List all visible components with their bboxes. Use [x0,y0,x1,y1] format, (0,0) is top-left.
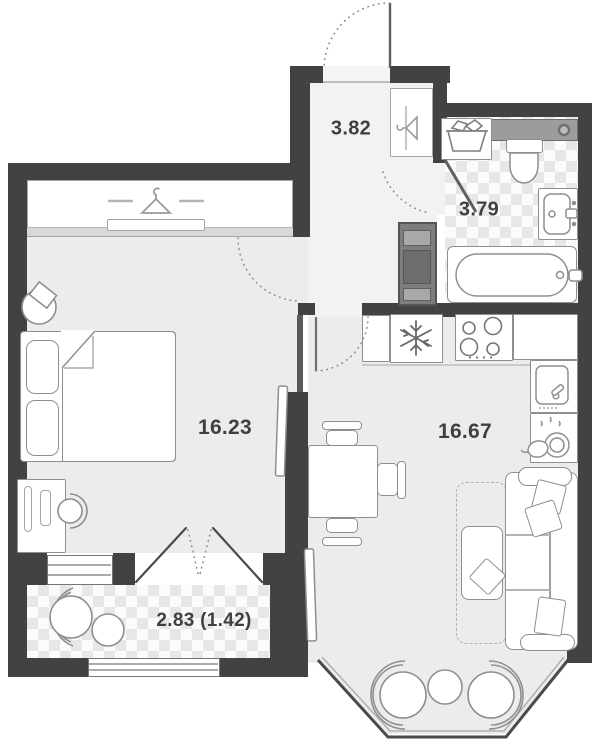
wall-partition [297,315,303,393]
kitchen-sink-cabinet [530,360,578,413]
fridge [390,314,443,363]
chair-back [397,461,406,499]
bay-frame-inner [322,657,564,731]
utility-shaft [398,222,437,306]
entry-door [324,3,390,69]
room-label-bedroom: 16.23 [198,416,252,440]
bay-armchair-left [371,661,426,729]
wall-segment [8,658,88,677]
bay-floor [318,658,568,734]
wall-segment [290,66,310,237]
wall-segment [290,66,323,83]
toilet-tank [506,139,543,153]
entry-threshold [323,66,390,83]
wall-segment [113,553,135,585]
wall-segment [8,163,293,180]
window-glazing-line [48,564,111,566]
wall-segment [220,658,290,677]
bay-table [428,670,462,704]
kitchen-counter [362,315,390,362]
room-label-living: 16.67 [438,420,492,444]
window-glazing-line [48,574,111,576]
wall-segment [8,553,47,585]
laundry-basket [441,118,492,160]
chair-seat [326,430,358,446]
shaft-box [403,230,431,246]
chair-seat [377,463,398,496]
dish-rack-cabinet [530,413,578,463]
wall-segment [390,66,450,83]
kitchen-counter [513,314,578,360]
bay-frame-outer [318,660,568,737]
floor-plan: 3.82 3.79 16.23 16.67 2.83 (1.42) [0,0,600,744]
bath-door-threshold [433,163,445,215]
hall-closet [390,88,433,157]
bay-armchair-right [468,661,523,729]
wall-segment [263,553,308,585]
chair-back [322,421,362,430]
shaft-box [403,288,431,301]
stove [455,314,513,361]
wall-segment [298,303,315,315]
door-swing-icon [324,3,390,69]
hall-living-threshold [308,302,364,317]
wall-segment [578,103,592,663]
room-label-balcony: 2.83 (1.42) [156,610,251,632]
bath-sink [538,188,578,240]
wall-segment [440,103,592,117]
window-glazing-line [89,663,218,665]
dining-table [308,445,378,518]
balcony-window [88,658,220,677]
desk-monitor [24,486,32,532]
wardrobe-door [107,219,205,231]
chair-back [322,537,362,546]
bathtub [447,246,577,303]
sofa-pillow [534,596,567,637]
shaft-box [403,250,431,284]
bedroom-door-floor [293,237,308,303]
window-glazing-line [89,669,218,671]
room-label-bathroom: 3.79 [459,199,499,222]
sofa-seat-divider [506,589,550,591]
sofa-armrest [520,634,575,651]
room-label-hallway: 3.82 [331,118,371,141]
bed-pillow [26,400,59,456]
bedroom-balcony-window [47,555,113,585]
bed-pillow [26,340,59,394]
desk-lamp [40,490,51,526]
chair-seat [326,518,358,533]
bed-blanket [62,331,176,462]
